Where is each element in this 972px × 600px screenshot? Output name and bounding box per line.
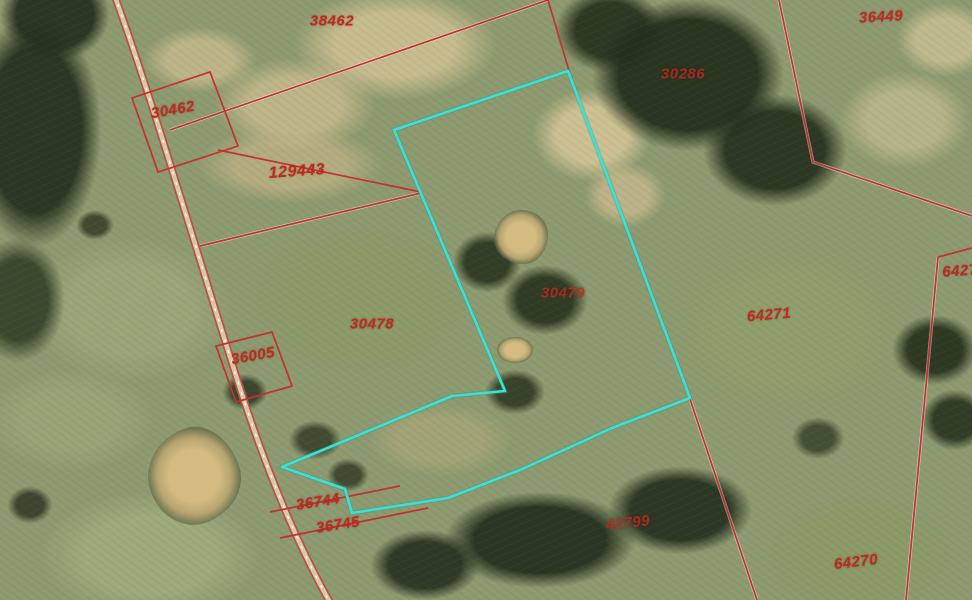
parcel-label-30478: 30478 — [350, 316, 394, 333]
parcel-label-38462: 38462 — [310, 13, 354, 30]
map-overlay — [0, 0, 972, 600]
highlighted-parcel[interactable] — [282, 71, 690, 513]
parcel-label-30286: 30286 — [661, 66, 705, 83]
aerial-map[interactable]: 38462 36449 30462 30286 129443 30479 304… — [0, 0, 972, 600]
parcel-label-30479: 30479 — [541, 285, 585, 302]
parcel-label-6427: 6427 — [942, 261, 972, 280]
highlighted-parcel-boundary[interactable] — [282, 71, 690, 513]
parcel-label-36449: 36449 — [858, 7, 903, 26]
